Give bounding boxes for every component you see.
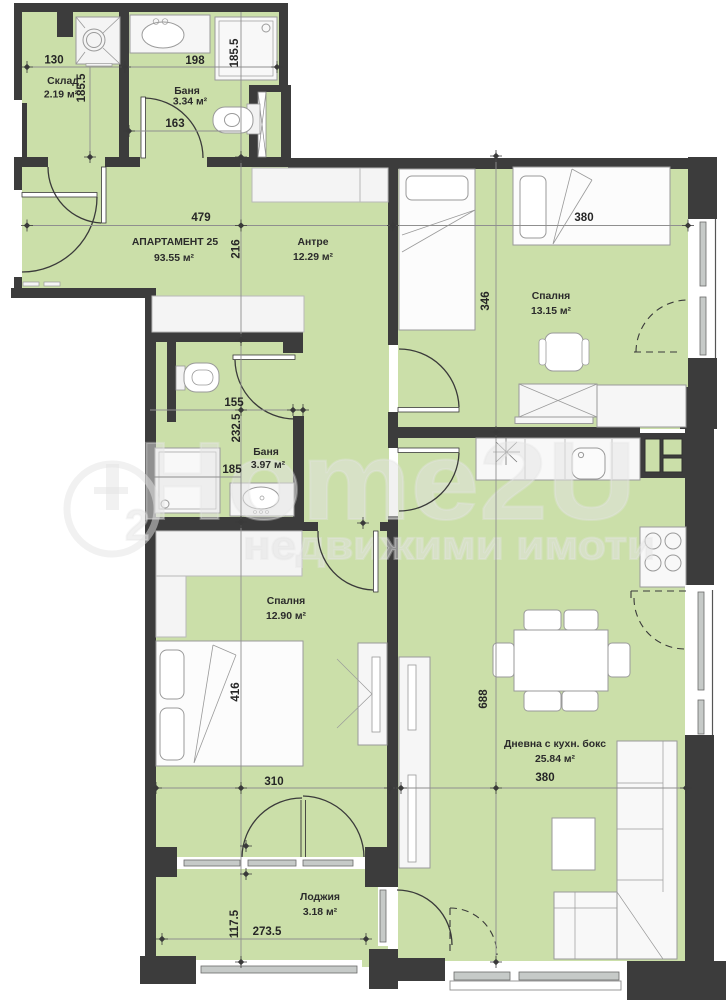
svg-text:Склад: Склад — [47, 76, 79, 87]
svg-text:185.5: 185.5 — [229, 38, 241, 67]
svg-text:13.15 м²: 13.15 м² — [531, 306, 572, 317]
svg-text:Антре: Антре — [298, 237, 329, 248]
svg-text:12.90 м²: 12.90 м² — [266, 611, 307, 622]
svg-text:163: 163 — [165, 118, 184, 130]
svg-text:273.5: 273.5 — [253, 926, 282, 938]
svg-text:12.29 м²: 12.29 м² — [293, 252, 334, 263]
svg-text:130: 130 — [44, 55, 63, 67]
svg-text:688: 688 — [478, 689, 490, 709]
svg-text:346: 346 — [480, 291, 492, 310]
svg-text:Баня: Баня — [253, 447, 279, 458]
svg-text:Дневна с кухн. бокс: Дневна с кухн. бокс — [504, 738, 606, 750]
svg-text:380: 380 — [574, 212, 593, 224]
svg-text:310: 310 — [264, 776, 283, 788]
svg-text:Лоджия: Лоджия — [300, 892, 340, 903]
svg-text:198: 198 — [185, 55, 205, 67]
svg-text:АПАРТАМЕНТ 25: АПАРТАМЕНТ 25 — [132, 237, 218, 248]
svg-text:3.97 м²: 3.97 м² — [251, 460, 286, 471]
svg-text:232.5: 232.5 — [231, 413, 243, 442]
svg-text:117.5: 117.5 — [229, 909, 241, 938]
svg-text:недвижими имоти: недвижими имоти — [243, 524, 655, 568]
svg-text:Спалня: Спалня — [532, 291, 571, 302]
svg-text:155: 155 — [224, 397, 244, 409]
svg-text:380: 380 — [535, 772, 554, 784]
svg-text:2.19 м²: 2.19 м² — [44, 90, 79, 101]
svg-text:93.55 м²: 93.55 м² — [154, 253, 195, 264]
svg-text:3.34 м²: 3.34 м² — [173, 97, 208, 108]
svg-text:Баня: Баня — [174, 86, 200, 97]
svg-text:3.18 м²: 3.18 м² — [303, 907, 338, 918]
svg-text:216: 216 — [231, 239, 243, 258]
svg-text:479: 479 — [191, 212, 210, 224]
svg-text:185: 185 — [222, 464, 242, 476]
svg-text:416: 416 — [230, 682, 242, 701]
svg-text:Спалня: Спалня — [267, 596, 306, 607]
svg-text:185.5: 185.5 — [76, 73, 88, 102]
svg-text:25.84 м²: 25.84 м² — [535, 754, 576, 765]
